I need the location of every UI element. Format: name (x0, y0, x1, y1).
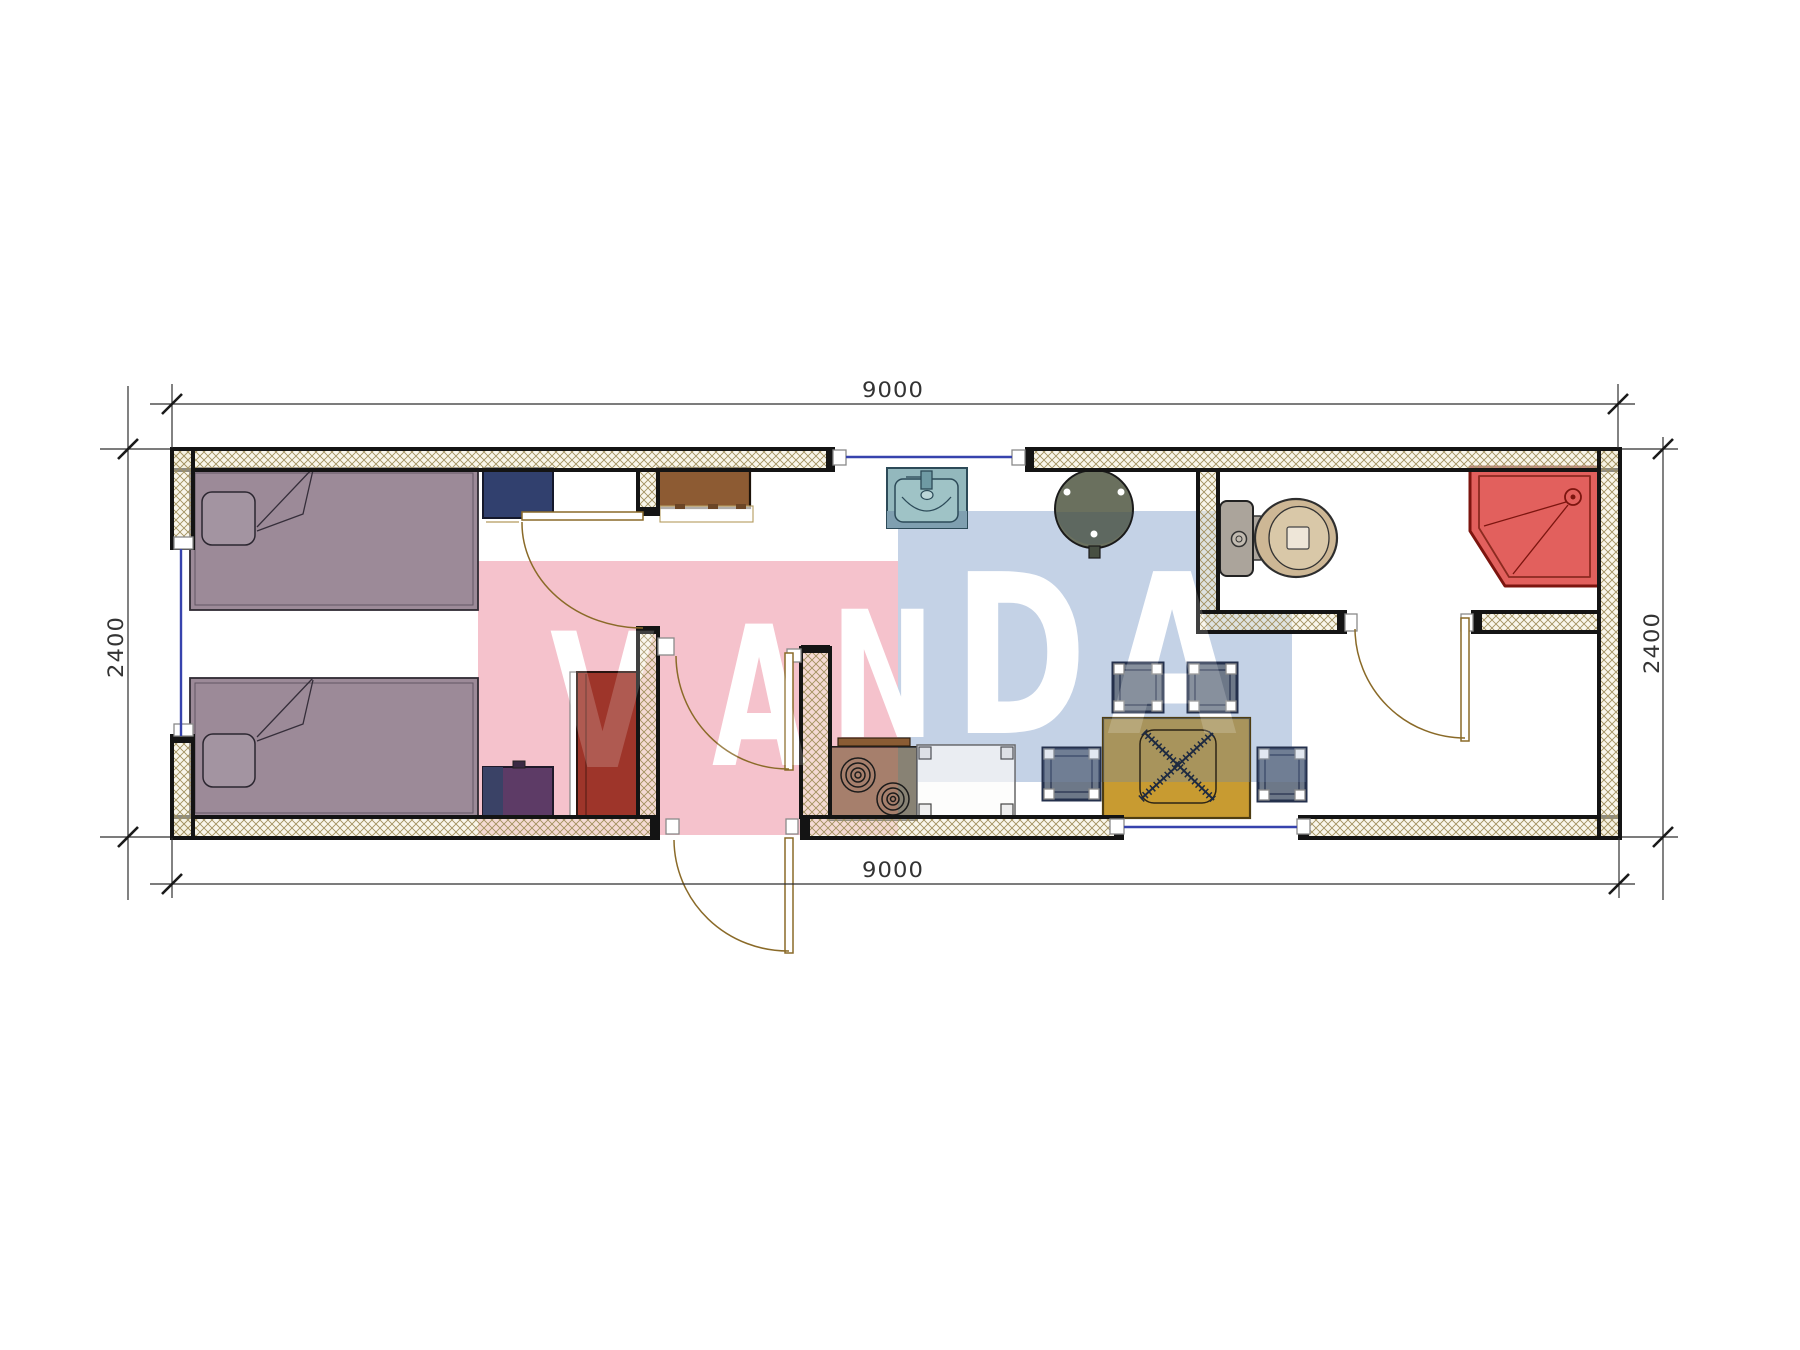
table-dot-3 (1091, 531, 1098, 538)
wall-top-left-segment (172, 449, 833, 470)
watermark-overlay-d: D (953, 528, 1087, 786)
shower-head-dot (1571, 495, 1576, 500)
cabinet-tab-2 (708, 504, 718, 509)
table-dot-1 (1064, 489, 1071, 496)
table-pedestal (1089, 546, 1100, 558)
entry-door-leaf (785, 838, 793, 953)
wall-cap-2 (1025, 449, 1034, 470)
bed-2-pillow (203, 734, 255, 787)
window-jamb-top-right (1012, 450, 1025, 465)
wall-bottom-left-segment (172, 817, 658, 838)
purple-cabinet-navy-side (483, 767, 503, 818)
cabinet-tab-1 (675, 504, 685, 509)
dim-text-top: 9000 (862, 378, 924, 402)
dim-text-left: 2400 (104, 616, 128, 678)
entry-door-jamb-left (666, 819, 679, 834)
window-jamb-left-bottom (174, 724, 193, 736)
window-jamb-bottom-left (1110, 819, 1124, 834)
cabinet-tab-3 (736, 504, 746, 509)
watermark-overlay-a1: A (712, 585, 806, 811)
wall-cap-13 (1473, 612, 1482, 632)
wall-left-upper-segment (172, 449, 193, 548)
wall-left-lower-segment (172, 736, 193, 838)
bathroom-door-leaf (1461, 618, 1469, 741)
closet-cabinet (657, 468, 750, 508)
stool-3 (1258, 748, 1306, 801)
counter-leg-4 (1001, 804, 1013, 816)
watermark-overlay-a2: A (1107, 528, 1237, 786)
entry-door-jamb-right (786, 819, 798, 834)
sink-faucet (921, 471, 932, 489)
wall-right (1599, 449, 1620, 838)
dim-text-bottom: 9000 (862, 858, 924, 882)
dim-text-right: 2400 (1640, 612, 1664, 674)
watermark-overlay-v: V (550, 594, 655, 812)
sink-drain (921, 491, 933, 500)
table-dot-2 (1118, 489, 1125, 496)
hall-door-jamb-left (658, 638, 674, 655)
wall-bathroom-south-right (1473, 612, 1599, 632)
wall-top-right-segment (1027, 449, 1620, 470)
nightstand (483, 468, 553, 518)
counter-leg-3 (919, 804, 931, 816)
floor-plan-page: V A N D A (0, 0, 1800, 1350)
entry-door-swing-arc (674, 840, 789, 951)
bedroom-door-leaf (522, 512, 643, 520)
wall-cap-6 (801, 817, 810, 838)
bed-1-pillow (202, 492, 255, 545)
bathroom-door-swing-arc (1355, 629, 1465, 738)
wall-cap-5 (650, 817, 659, 838)
wall-bottom-right-segment (1300, 817, 1620, 838)
wall-bottom-middle-segment (802, 817, 1122, 838)
window-jamb-bottom-right (1297, 819, 1310, 834)
toilet-seat-detail (1287, 527, 1309, 549)
floor-plan-drawing: V A N D A (0, 0, 1800, 1350)
toilet (1220, 499, 1337, 577)
cabinet-knob (513, 761, 525, 768)
bath-door-jamb-left (1345, 614, 1357, 631)
window-jamb-left-top (174, 537, 193, 549)
window-jamb-top-left (833, 450, 846, 465)
watermark-overlay-n: N (830, 574, 935, 779)
